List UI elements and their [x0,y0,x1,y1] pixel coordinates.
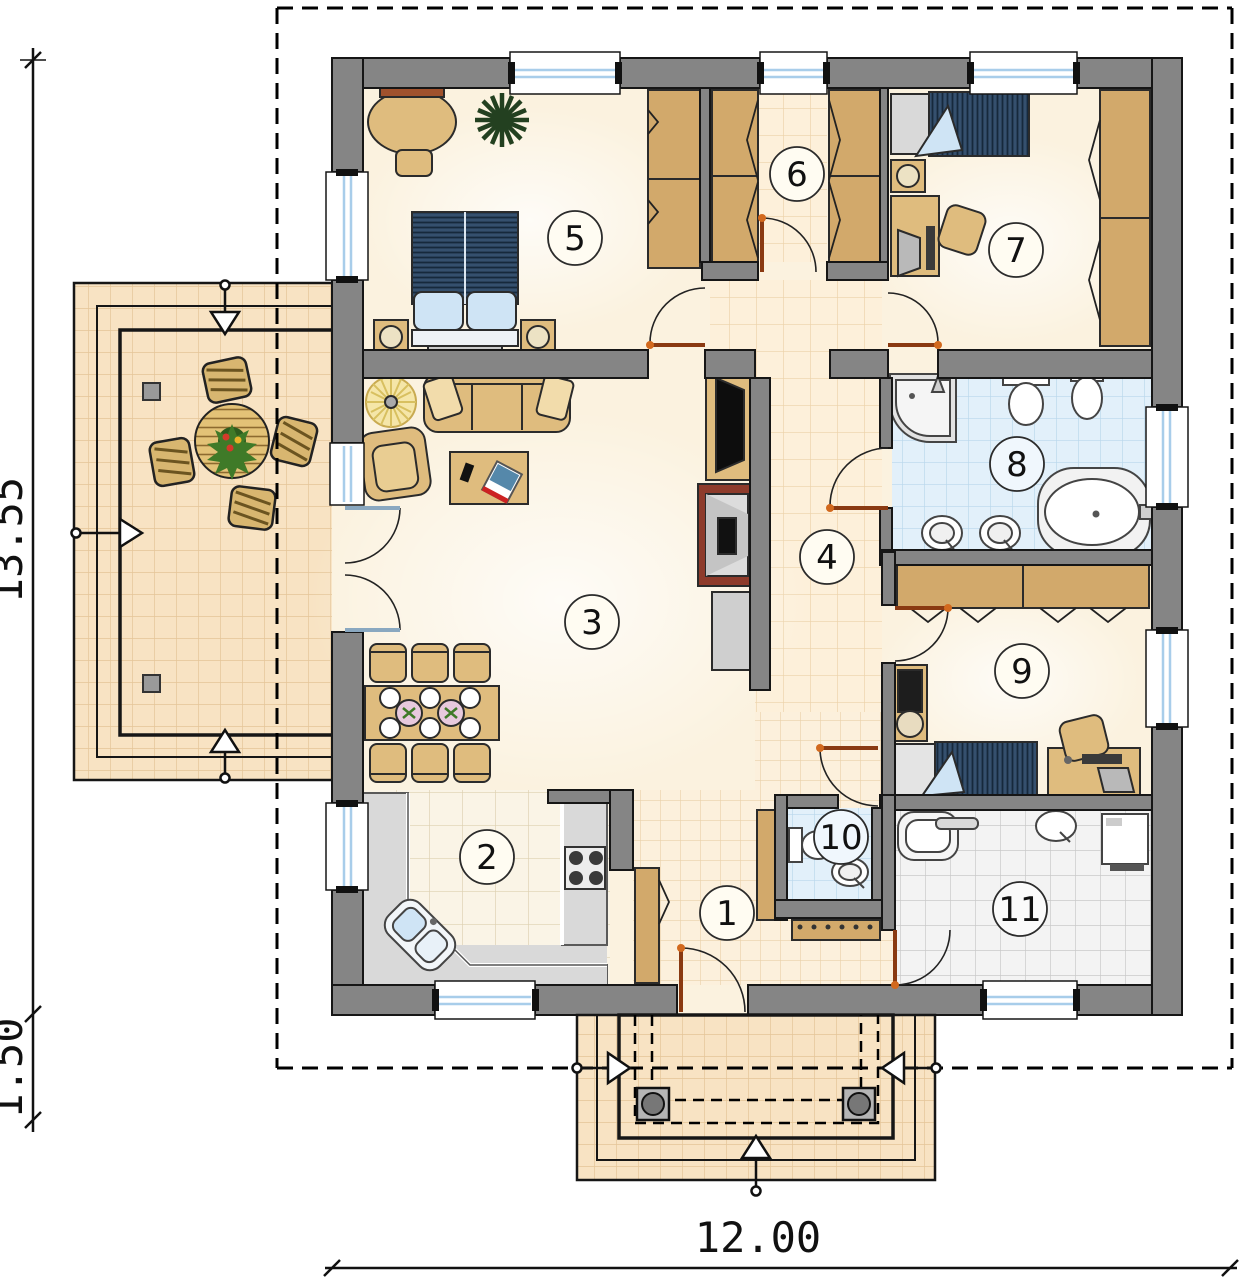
keyboard-icon [926,226,935,270]
vanity-stool [396,150,432,176]
window-top [508,52,622,94]
room-label-5: 5 [548,211,602,265]
svg-text:3: 3 [581,603,603,643]
terrace-chair [201,356,252,404]
room-label-1: 1 [700,886,754,940]
dim-total-height: 13.55 [0,477,32,603]
svg-text:8: 8 [1006,445,1028,485]
pillow [414,292,463,330]
terrace-table [195,404,269,480]
computer-monitor-icon [898,230,920,276]
svg-text:5: 5 [564,219,586,259]
tv-icon [716,378,744,472]
svg-text:2: 2 [476,838,498,878]
floor-plan-page: 13.55 1.50 12.00 1 2 3 4 5 6 7 [0,0,1239,1283]
hall-cabinet [635,868,659,983]
keyboard-icon [1082,754,1122,764]
bedside-lamp-icon [380,326,402,348]
hall-floor-upper [755,712,882,792]
toilet [1009,383,1043,425]
dim-porch-depth: 1.50 [0,1017,32,1118]
coat-rail [792,920,880,940]
pillow [467,292,516,330]
svg-text:6: 6 [786,155,808,195]
porch-column [843,1088,875,1120]
room-label-7: 7 [989,223,1043,277]
terrace-chair [148,437,195,487]
room-label-8: 8 [990,437,1044,491]
house [310,52,1188,1019]
room-label-4: 4 [800,530,854,584]
bathtub-basin [1045,479,1139,545]
bidet [1072,377,1102,419]
room-label-11: 11 [993,882,1047,936]
computer-monitor-icon [1098,768,1134,792]
svg-text:7: 7 [1005,231,1027,271]
toilet-cistern [789,828,802,862]
room-label-2: 2 [460,830,514,884]
bedside-lamp-icon [527,326,549,348]
fan-icon [897,711,923,737]
window-right [1146,627,1188,730]
window-left [326,169,368,283]
svg-text:10: 10 [819,818,862,858]
terrace-floor [74,283,334,780]
floor-lamp-icon [366,377,416,427]
svg-text:4: 4 [816,538,838,578]
room-label-6: 6 [770,147,824,201]
window-right [1146,404,1188,510]
floor-plan-svg: 13.55 1.50 12.00 1 2 3 4 5 6 7 [0,0,1239,1283]
room-label-3: 3 [565,595,619,649]
terrace-chair [228,485,277,530]
firebox-icon [718,518,736,554]
terrace-lamp [143,383,160,400]
mouse-icon [1064,756,1072,764]
plant-icon [475,93,529,147]
faucet-icon [936,818,978,829]
terrace [72,281,335,783]
washbasin [1036,811,1076,841]
window-left [326,800,368,893]
window-bottom [432,981,539,1019]
dim-total-width: 12.00 [695,1213,821,1262]
window-top [967,52,1080,94]
window-left-fixed [330,443,364,505]
vanity-table [368,90,456,154]
corridor-floor-upper [710,280,882,350]
coat-closet [757,810,775,920]
window-bottom [980,981,1080,1019]
bedside-lamp-icon [897,165,919,187]
bed-sheet [412,330,518,346]
terrace-lamp [143,675,160,692]
room-label-9: 9 [995,644,1049,698]
svg-text:9: 9 [1011,652,1033,692]
stereo-icon [898,670,922,712]
vanity-shelf [380,88,444,97]
room-label-10: 10 [814,810,868,864]
svg-text:11: 11 [998,890,1041,930]
porch-column [637,1088,669,1120]
svg-text:1: 1 [716,894,738,934]
window-top [757,52,830,94]
